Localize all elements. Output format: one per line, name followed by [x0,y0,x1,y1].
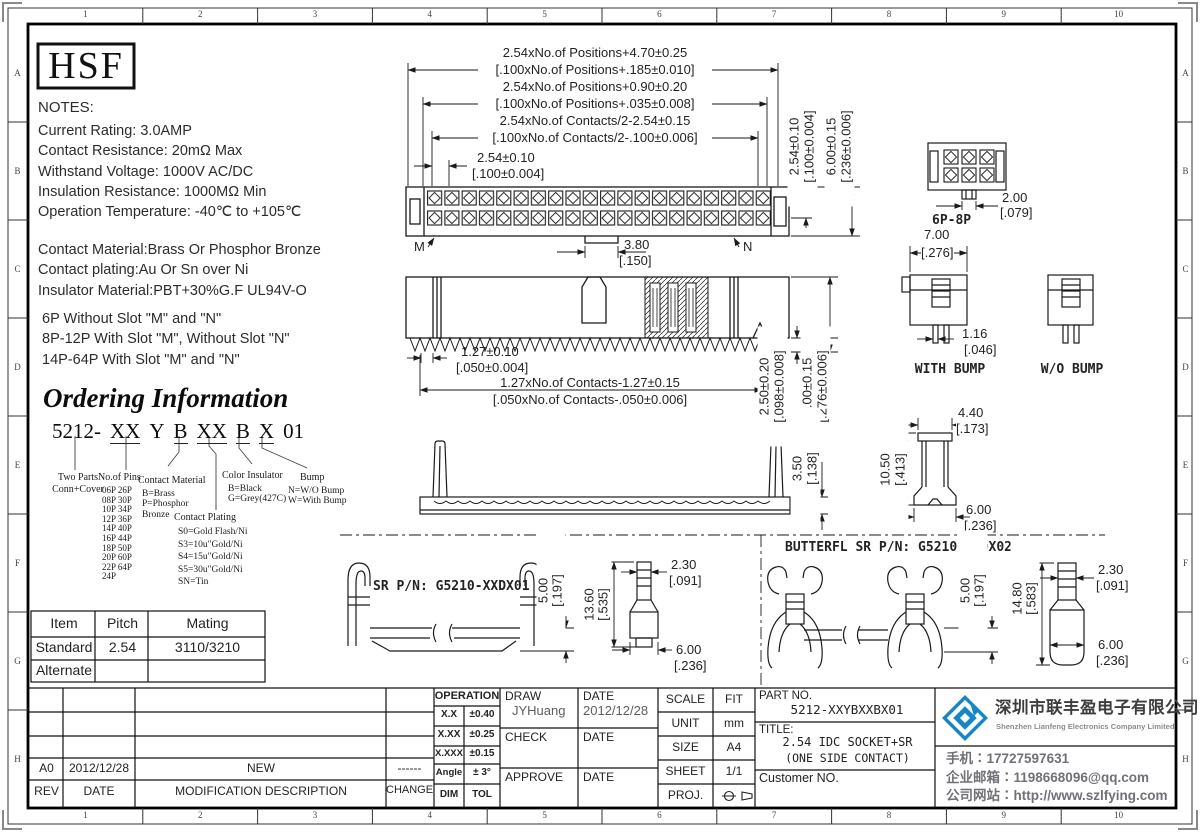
size-label: SIZE [658,741,713,754]
zone-letter: H [10,710,25,808]
row-standard-pitch: 2.54 [97,640,148,655]
dim-pitch-254: 2.54±0.10 [477,151,535,165]
code-color: B [236,419,250,444]
bump-option: N=W/O Bump [288,486,347,496]
dim-350-inch: [.138] [806,409,821,529]
code-series: Y [149,419,164,443]
part-no-value: 5212-XXYBXXBX01 [762,703,932,717]
dim-230-sr: 2.30 [671,558,696,572]
dim-height-600: 6.00±0.15 [825,87,840,207]
bump-option: W=With Bump [288,496,347,506]
zone-letter: D [1178,318,1193,416]
dim-440: 4.40 [958,406,983,420]
note-line: Contact Material:Brass Or Phosphor Bronz… [38,240,321,260]
zone-number: 3 [258,810,373,823]
draw-label: DRAW [505,690,541,703]
material-option: B=Brass [142,489,189,499]
code-bump: X [259,419,274,444]
code-plating: XX [197,419,227,444]
company-name-en: Shenzhen Lianfeng Electronics Company Li… [996,723,1174,731]
pins-list: 06P 26P08P 30P10P 34P12P 36P14P 40P16P 4… [102,486,132,582]
material-option: P=Phosphor [142,499,189,509]
company-name-cn: 深圳市联丰盈电子有限公司 [995,700,1199,718]
zone-number: 6 [602,9,717,22]
dim-250: 2.50±0.20 [758,327,773,447]
dim-1050: 10.50 [879,410,894,530]
pins-title: No.of Pins [98,472,141,483]
dim-500-bf-inch: [.197] [973,531,988,651]
dim-row-pitch: 2.54±0.10 [788,87,803,207]
zone-number: 8 [832,9,947,22]
dim-600-sr-inch: [.236] [674,659,707,673]
row-standard-mating: 3110/3210 [150,640,265,655]
company-logo-icon [942,695,988,741]
dim-200-inch: [.079] [1000,206,1033,220]
zone-letters-right: ABCDEFGH [1178,24,1193,808]
dim-250-inch: [.098±0.008] [773,327,788,447]
change-header: CHANGE [386,785,433,797]
zone-number: 7 [717,810,832,823]
note-line: Current Rating: 3.0AMP [38,121,301,141]
notes-lines: Current Rating: 3.0AMPContact Resistance… [38,121,301,222]
notes-material: Contact Material:Brass Or Phosphor Bronz… [38,240,321,301]
approve-label: APPROVE [505,771,563,784]
zone-number: 1 [28,9,143,22]
dim-positions-470: 2.54xNo.of Positions+4.70±0.25 [395,46,795,60]
zone-number: 10 [1061,9,1176,22]
unit-value: mm [713,717,755,730]
dim-tooth-127: 1.27±0.10 [461,345,519,359]
company-phone: 手机∶17727597631 [946,750,1168,769]
unit-label: UNIT [658,717,713,730]
engineering-drawing-sheet: 12345678910 12345678910 ABCDEFGH ABCDEFG… [0,0,1200,832]
tol-xxxx-value: ±0.15 [464,749,500,760]
company-contact: 手机∶17727597631 企业邮箱∶1198668096@qq.com 公司… [946,750,1168,806]
tol-angle-value: ± 3° [464,768,500,779]
zone-number: 3 [258,9,373,22]
dim-200: 2.00 [1002,191,1027,205]
modification-header: MODIFICATION DESCRIPTION [137,785,385,798]
dim-700: 7.00 [924,228,949,242]
dim-380: 3.80 [624,238,649,252]
part-no-label: PART NO. [759,690,812,702]
dim-600-bf: 6.00 [1098,638,1123,652]
item-header: Item [33,616,95,631]
dim-tooth-127-inch: [.050±0.004] [456,361,528,375]
note-line: 14P-64P With Slot "M" and "N" [42,350,290,370]
date-header: DATE [65,785,133,798]
rev-date-value: 2012/12/28 [65,762,133,775]
dim-col-label: DIM [434,790,464,801]
zone-numbers-top: 12345678910 [28,9,1176,22]
zone-letter: G [1178,612,1193,710]
color-option: G=Grey(427C) [228,494,286,504]
color-option: B=Black [228,484,286,494]
dim-116-inch: [.046] [964,343,997,357]
zone-letter: D [10,318,25,416]
projection-symbol [722,792,752,801]
note-line: Contact Resistance: 20mΩ Max [38,141,301,161]
dim-1050-inch: [.413] [894,410,909,530]
bump-list: N=W/O BumpW=With Bump [288,486,347,507]
code-suffix: 01 [283,419,304,443]
dim-contacts-127-inch: [.050xNo.of Contacts-.050±0.006] [475,393,705,407]
zone-number: 8 [832,810,947,823]
scale-label: SCALE [658,693,713,706]
zone-number: 9 [946,9,1061,22]
zone-letter: A [10,24,25,122]
scale-value: FIT [713,693,755,706]
zone-number: 1 [28,810,143,823]
zone-number: 4 [372,810,487,823]
plating-option: SN=Tin [178,576,248,589]
check-label: CHECK [505,731,547,744]
color-insulator-title: Color Insulator [222,470,283,481]
ordering-title: Ordering Information [43,384,288,413]
view-6p-8p-label: 6P-8P [932,214,971,228]
row-standard-item: Standard [33,640,95,655]
draw-date-value: 2012/12/28 [583,704,648,718]
dim-116: 1.16 [962,327,987,341]
zone-numbers-bottom: 12345678910 [28,810,1176,823]
note-line: Withstand Voltage: 1000V AC/DC [38,162,301,182]
notes-title: NOTES: [38,100,94,116]
proj-label: PROJ. [658,789,713,802]
sheet-value: 1/1 [713,765,755,778]
zone-number: 5 [487,9,602,22]
dim-380-inch: [.150] [619,254,652,268]
note-line: 6P Without Slot "M" and "N" [42,309,290,329]
dim-contacts-254: 2.54xNo.of Contacts/2-2.54±0.15 [395,114,795,128]
color-insulator-list: B=BlackG=Grey(427C) [228,484,286,505]
rev-change-value: ------ [386,762,433,775]
rev-value: A0 [30,762,63,775]
zone-number: 4 [372,9,487,22]
note-line: Contact plating:Au Or Sn over Ni [38,260,321,280]
dim-contacts-254-inch: [.100xNo.of Contacts/2-.100±0.006] [478,131,712,145]
zone-letter: B [1178,122,1193,220]
plating-option: S0=Gold Flash/Ni [178,526,248,539]
note-line: Operation Temperature: -40℃ to +105℃ [38,202,301,222]
pitch-header: Pitch [97,616,148,631]
code-pins: XX [110,419,140,444]
zone-letter: C [1178,220,1193,318]
dim-230-bf: 2.30 [1098,563,1123,577]
zone-number: 6 [602,810,717,823]
zone-letter: B [10,122,25,220]
slot-m-label: M [414,240,425,254]
note-line: Insulator Material:PBT+30%G.F UL94V-O [38,281,321,301]
sr-part-number: SR P/N: G5210-XXDX01 [373,580,530,594]
dim-600-bf-inch: [.236] [1096,654,1129,668]
dim-positions-090: 2.54xNo.of Positions+0.90±0.20 [395,80,795,94]
dim-230-sr-inch: [.091] [669,574,702,588]
title-line1: 2.54 IDC SOCKET+SR [765,736,930,749]
dim-1360-inch: [.535] [597,545,612,665]
zone-letter: E [1178,416,1193,514]
code-prefix: 5212- [52,419,101,443]
sheet-label: SHEET [658,765,713,778]
zone-letter: H [1178,710,1193,808]
bump-title: Bump [300,472,324,483]
plating-option: S5=30u"Gold/Ni [178,564,248,577]
dim-row-pitch-inch: [.100±0.004] [803,87,818,207]
draw-date-label: DATE [583,690,614,703]
company-website: 公司网站∶http://www.szlfying.com [946,787,1168,806]
dim-contacts-127: 1.27xNo.of Contacts-1.27±0.15 [390,376,790,390]
rev-header: REV [30,785,63,798]
dim-positions-090-inch: [.100xNo.of Positions+.035±0.008] [478,97,712,111]
rev-desc-value: NEW [137,762,385,775]
dim-700-inch: [.276] [921,246,954,260]
pin-option: 24P [102,572,132,582]
zone-number: 5 [487,810,602,823]
dim-500-sr-inch: [.197] [551,531,566,651]
zone-letter: F [1178,514,1193,612]
with-bump-label: WITH BUMP [900,363,1000,377]
dim-230-bf-inch: [.091] [1096,579,1129,593]
plating-option: S4=15u"Gold/Ni [178,551,248,564]
zone-number: 2 [143,810,258,823]
plating-option: S3=10u"Gold/Ni [178,539,248,552]
size-value: A4 [713,741,755,754]
approve-date-label: DATE [583,771,614,784]
zone-letter: A [1178,24,1193,122]
contact-plating-title: Contact Plating [174,512,236,523]
tol-xxx-label: X.XX [434,730,464,741]
dim-350: 3.50 [791,409,806,529]
dim-height-600-inch: [.236±0.006] [840,87,855,207]
dim-pitch-254-inch: [.100±0.004] [472,167,544,181]
dim-positions-470-inch: [.100xNo.of Positions+.185±0.010] [478,63,712,77]
wo-bump-label: W/O BUMP [1022,363,1122,377]
title-line2: (ONE SIDE CONTACT) [765,752,930,764]
zone-number: 7 [717,9,832,22]
contact-plating-list: S0=Gold Flash/NiS3=10u"Gold/NiS4=15u"Gol… [178,526,248,589]
zone-letter: C [10,220,25,318]
draw-name: JYHuang [512,704,565,718]
zone-letter: F [10,514,25,612]
dim-600-contact: 6.00 [966,503,991,517]
tol-xx-value: ±0.40 [464,710,500,721]
customer-no-label: Customer NO. [759,772,839,786]
dim-600-sr: 6.00 [676,643,701,657]
company-email: 企业邮箱∶1198668096@qq.com [946,769,1168,788]
tol-col-label: TOL [464,790,500,801]
check-date-label: DATE [583,731,614,744]
tol-xx-label: X.X [434,710,464,721]
tol-angle-label: Angle [434,768,464,778]
notes-slots: 6P Without Slot "M" and "N"8P-12P With S… [42,309,290,370]
slot-n-label: N [743,240,752,254]
hsf-logo: HSF [38,46,134,87]
tol-xxx-value: ±0.25 [464,730,500,741]
row-alternate-item: Alternate [33,663,95,678]
contact-material-title: Contact Material [138,475,205,486]
zone-letter: G [10,612,25,710]
zone-letters-left: ABCDEFGH [10,24,25,808]
mating-header: Mating [150,616,265,631]
tol-xxxx-label: X.XXX [434,749,464,759]
code-material: B [174,419,188,444]
zone-number: 9 [946,810,1061,823]
part-number-code: 5212-XXYBXXBX01 [52,420,304,443]
zone-number: 2 [143,9,258,22]
note-line: 8P-12P With Slot "M", Without Slot "N" [42,329,290,349]
zone-number: 10 [1061,810,1176,823]
dim-1480-inch: [.583] [1025,539,1040,659]
operation-header: OPERATION [434,691,500,703]
note-line: Insulation Resistance: 1000MΩ Min [38,182,301,202]
dim-440-inch: [.173] [956,422,989,436]
zone-letter: E [10,416,25,514]
